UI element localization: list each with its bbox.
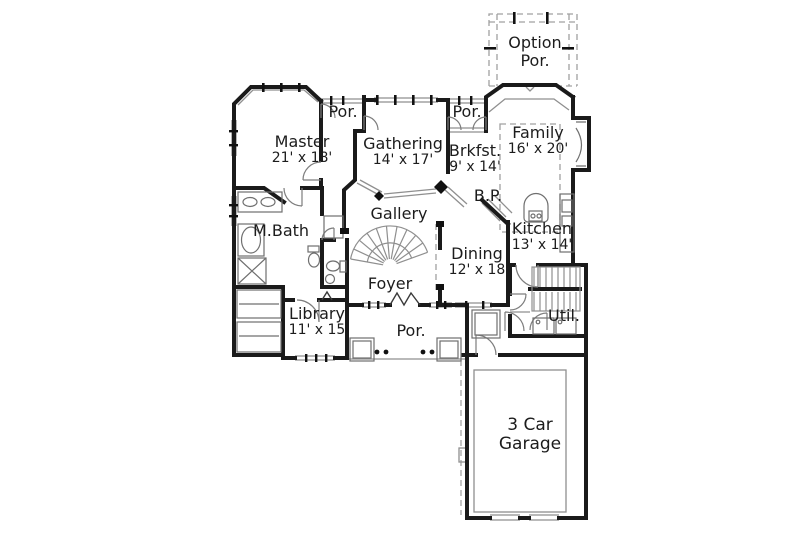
room-name: Gallery [371, 205, 428, 223]
toilet [308, 246, 320, 267]
room-label-family: Family 16' x 20' [508, 124, 569, 158]
floor-plan-canvas: Option Por. Master 21' x 18' Por. Gather… [0, 0, 800, 535]
room-dimensions: 21' x 18' [272, 151, 333, 167]
room-name: Foyer [368, 275, 412, 293]
room-label-gathering: Gathering 14' x 17' [363, 135, 443, 169]
room-label-porch-top-right: Por. [452, 103, 481, 121]
room-name: Dining [449, 245, 506, 263]
room-label-porch-top-left: Por. [328, 103, 357, 121]
room-label-dining: Dining 12' x 18 [449, 245, 506, 279]
room-name: Library [289, 305, 346, 323]
floor-plan-drawing [0, 0, 800, 535]
room-label-option-porch: Option Por. [508, 34, 561, 70]
room-label-master-bath: M.Bath [253, 222, 309, 240]
powder-toilet [326, 261, 347, 284]
room-label-library: Library 11' x 15 [289, 305, 346, 339]
room-name: Por. [328, 103, 357, 121]
room-name-line2: Garage [499, 435, 561, 454]
room-label-breakfast: Brkfst. 9' x 14' [449, 142, 501, 176]
room-name-line2: Por. [508, 52, 561, 70]
room-dimensions: 9' x 14' [449, 160, 501, 176]
room-name: Option [508, 34, 561, 52]
room-dimensions: 12' x 18 [449, 263, 506, 279]
room-dimensions: 16' x 20' [508, 142, 569, 158]
room-label-master: Master 21' x 18' [272, 133, 333, 167]
room-name: Gathering [363, 135, 443, 153]
room-name: Family [508, 124, 569, 142]
room-label-utility: Util. [548, 307, 580, 325]
room-label-butlers-pantry: B.P. [474, 187, 502, 205]
fireplace [576, 122, 586, 166]
room-name: Master [272, 133, 333, 151]
room-name: Brkfst. [449, 142, 501, 160]
room-name: Kitchen [512, 220, 573, 238]
room-dimensions: 13' x 14' [512, 238, 573, 254]
room-label-kitchen: Kitchen 13' x 14' [512, 220, 573, 254]
room-name: Por. [396, 322, 425, 340]
room-name: M.Bath [253, 222, 309, 240]
room-label-garage: 3 Car Garage [499, 416, 561, 454]
kitchen-island [524, 194, 548, 223]
room-name: Util. [548, 307, 580, 325]
room-name: 3 Car [499, 416, 561, 435]
room-label-gallery: Gallery [371, 205, 428, 223]
foyer-spiral-stair [351, 226, 428, 265]
room-label-foyer: Foyer [368, 275, 412, 293]
room-name: Por. [452, 103, 481, 121]
room-dimensions: 14' x 17' [363, 153, 443, 169]
room-dimensions: 11' x 15 [289, 323, 346, 339]
room-name: B.P. [474, 187, 502, 205]
shower [238, 258, 266, 284]
room-label-porch-bottom: Por. [396, 322, 425, 340]
